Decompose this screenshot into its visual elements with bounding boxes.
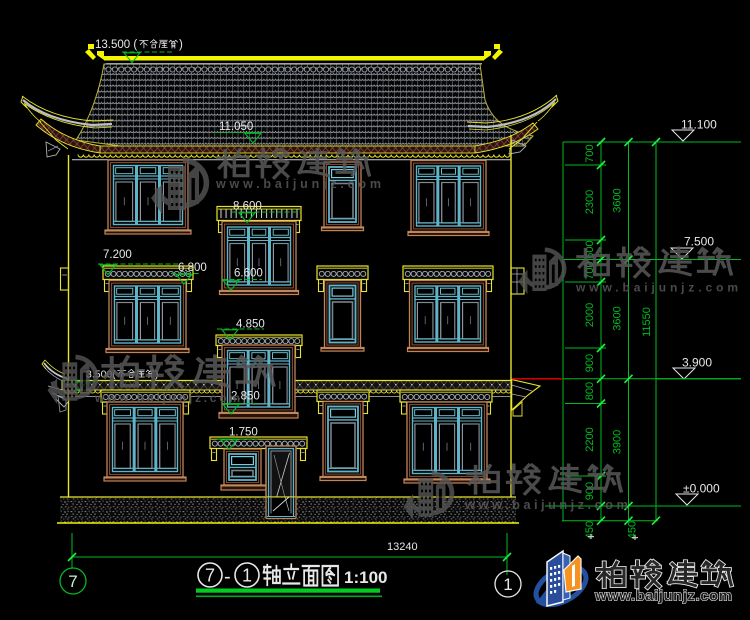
svg-text:8.600: 8.600 (233, 201, 262, 213)
svg-text:3600: 3600 (612, 188, 624, 212)
svg-text:2200: 2200 (584, 427, 596, 451)
svg-text:700: 700 (584, 144, 596, 162)
svg-text:±0.000: ±0.000 (683, 482, 720, 496)
svg-text:7: 7 (205, 566, 215, 586)
svg-text:13.500 (: 13.500 ( (95, 39, 137, 51)
svg-text:7: 7 (68, 572, 77, 591)
svg-text:450: 450 (627, 521, 639, 539)
svg-text:www.baijunjz.com: www.baijunjz.com (594, 588, 732, 605)
svg-text:3.900: 3.900 (682, 356, 712, 370)
svg-text:7.200: 7.200 (103, 249, 132, 261)
svg-text:-: - (224, 566, 231, 588)
svg-text:11.100: 11.100 (681, 118, 717, 132)
svg-text:): ) (179, 39, 183, 51)
svg-text:7.500: 7.500 (684, 235, 714, 249)
svg-text:1: 1 (242, 566, 252, 586)
svg-text:900: 900 (584, 354, 596, 372)
svg-text:1: 1 (503, 575, 512, 594)
svg-text:13240: 13240 (387, 541, 418, 553)
svg-text:2000: 2000 (584, 303, 596, 327)
svg-text:1.750: 1.750 (229, 427, 258, 439)
svg-text:3600: 3600 (612, 306, 624, 330)
svg-text:3900: 3900 (612, 430, 624, 454)
svg-text:1:100: 1:100 (344, 568, 387, 587)
svg-text:6.600: 6.600 (234, 268, 263, 280)
svg-text:6.800: 6.800 (178, 262, 207, 274)
svg-text:2300: 2300 (584, 190, 596, 214)
svg-text:11550: 11550 (641, 307, 653, 337)
svg-text:11.050: 11.050 (219, 121, 253, 133)
svg-text:800: 800 (584, 382, 596, 400)
